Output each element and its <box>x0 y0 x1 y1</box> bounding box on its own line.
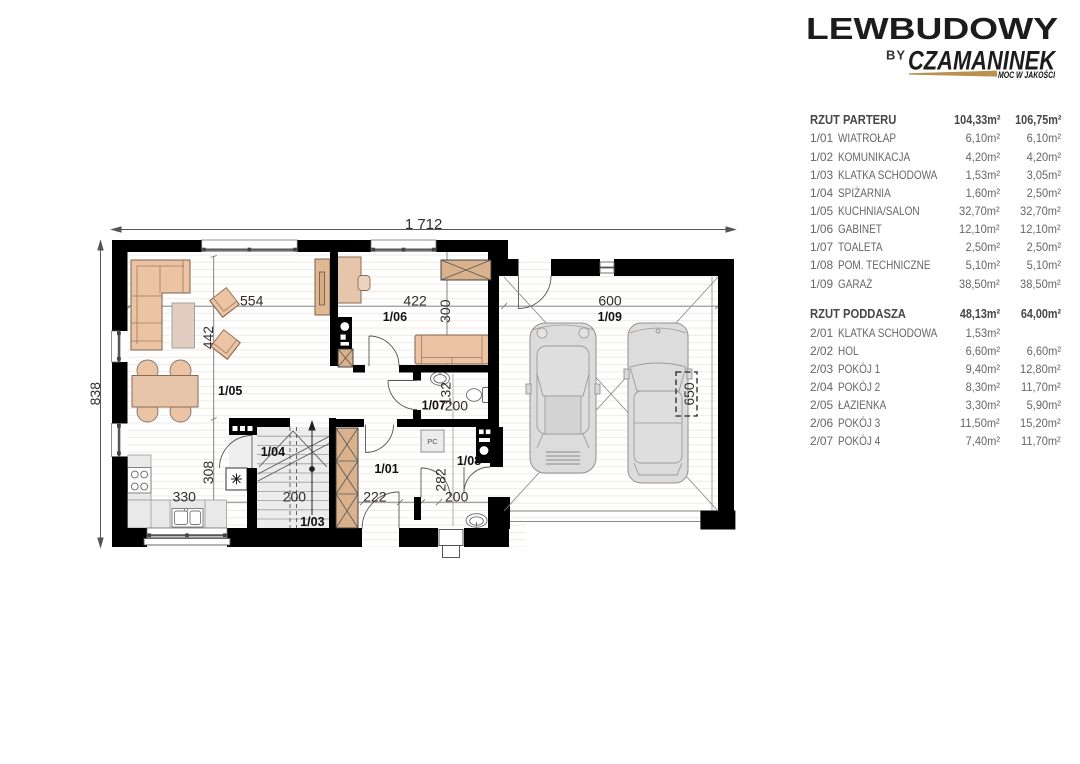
svg-text:1/03: 1/03 <box>300 515 324 529</box>
svg-text:650: 650 <box>681 382 697 406</box>
svg-text:554: 554 <box>240 292 264 308</box>
svg-text:200: 200 <box>283 489 307 505</box>
svg-text:1/04: 1/04 <box>261 445 285 459</box>
svg-text:1/01: 1/01 <box>374 462 398 476</box>
svg-text:1 712: 1 712 <box>405 216 443 233</box>
svg-text:1/06: 1/06 <box>383 310 407 324</box>
svg-text:1/09: 1/09 <box>598 310 622 324</box>
svg-text:330: 330 <box>173 489 197 505</box>
svg-text:MOC W JAKOŚCI: MOC W JAKOŚCI <box>998 69 1055 80</box>
svg-text:300: 300 <box>437 299 453 323</box>
svg-text:422: 422 <box>403 292 427 308</box>
svg-text:838: 838 <box>87 382 103 406</box>
svg-text:308: 308 <box>200 461 216 485</box>
svg-text:442: 442 <box>200 326 216 350</box>
svg-text:200: 200 <box>445 398 469 414</box>
svg-text:282: 282 <box>433 468 449 492</box>
svg-text:1/07: 1/07 <box>422 398 446 412</box>
svg-text:1/08: 1/08 <box>457 454 481 468</box>
svg-text:BY: BY <box>886 48 906 63</box>
svg-text:PC: PC <box>427 437 438 446</box>
svg-text:222: 222 <box>363 489 387 505</box>
svg-text:LEWBUDOWY: LEWBUDOWY <box>806 12 1058 46</box>
svg-text:600: 600 <box>598 292 622 308</box>
svg-text:1/05: 1/05 <box>218 384 242 398</box>
